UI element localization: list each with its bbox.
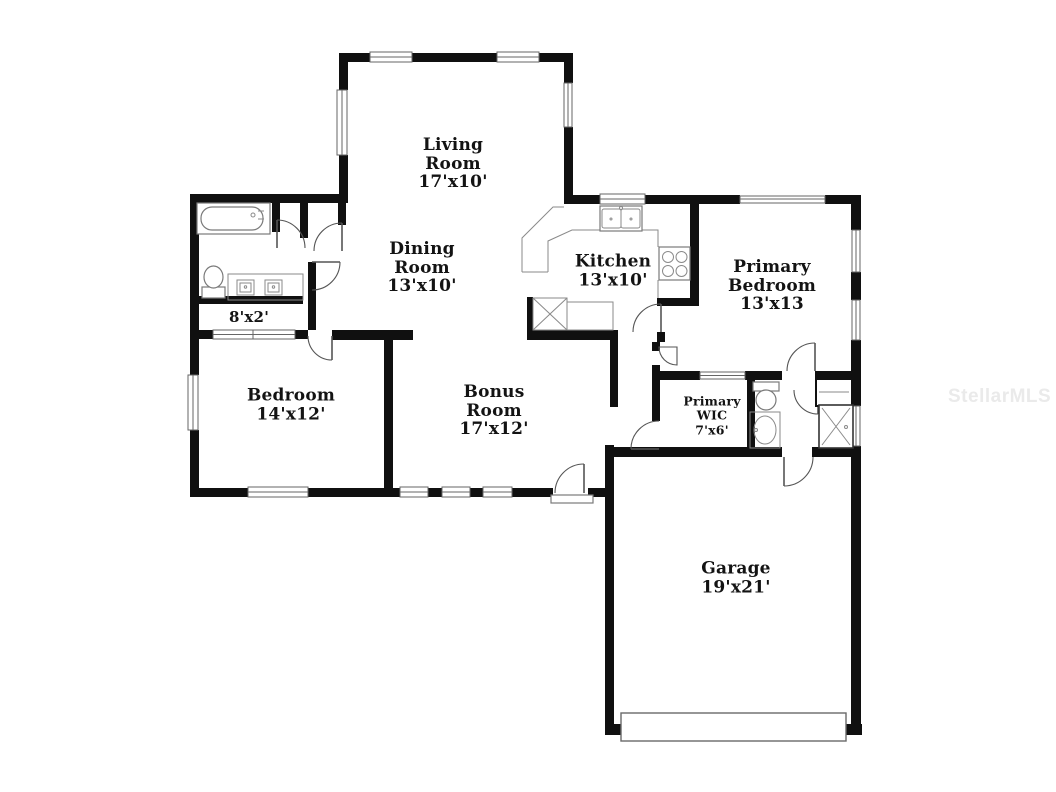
room-dims: 13'x13 <box>722 295 822 314</box>
room-dims: 17'x10' <box>411 173 495 192</box>
bathtub-icon <box>197 203 270 234</box>
room-name: Bedroom <box>236 386 346 405</box>
entry-door-sill <box>551 495 593 503</box>
closet-bifold-icon <box>213 330 295 339</box>
room-dims: 8'x2' <box>214 309 284 326</box>
primary-toilet-icon <box>753 382 779 410</box>
room-label-hall-closet: 8'x2' <box>214 309 284 326</box>
room-name: Kitchen <box>563 252 663 271</box>
room-name: Living Room <box>411 136 495 173</box>
room-dims: 13'x10' <box>563 271 663 290</box>
room-label-bonus-room: Bonus Room 17'x12' <box>459 383 529 439</box>
room-label-dining-room: Dining Room 13'x10' <box>380 240 464 296</box>
room-dims: 17'x12' <box>459 420 529 439</box>
room-dims: 19'x21' <box>686 578 786 597</box>
room-name: Bonus Room <box>459 383 529 420</box>
room-dims: 13'x10' <box>380 277 464 296</box>
room-label-primary-bedroom: Primary Bedroom 13'x13 <box>722 258 822 314</box>
room-dims: 7'x6' <box>681 423 743 437</box>
room-name: Garage <box>686 559 786 578</box>
room-label-primary-wic: Primary WIC 7'x6' <box>681 394 743 437</box>
room-dims: 14'x12' <box>236 405 346 424</box>
room-name: Dining Room <box>380 240 464 277</box>
pantry-closet-icon <box>533 298 613 330</box>
room-name: Primary Bedroom <box>722 258 822 295</box>
shower-icon <box>819 405 853 448</box>
stove-icon <box>659 247 690 280</box>
wic-opening <box>700 372 745 379</box>
room-name: Primary WIC <box>681 394 743 423</box>
room-label-living-room: Living Room 17'x10' <box>411 136 495 192</box>
kitchen-sink-icon <box>600 206 642 231</box>
linen-closet-icon <box>816 379 852 406</box>
toilet-icon <box>202 266 225 298</box>
garage-door-icon <box>621 713 846 741</box>
room-label-kitchen: Kitchen 13'x10' <box>563 252 663 289</box>
room-label-garage: Garage 19'x21' <box>686 559 786 596</box>
room-label-bedroom: Bedroom 14'x12' <box>236 386 346 423</box>
stellar-mls-watermark: StellarMLS <box>948 386 1051 408</box>
floor-plan: Living Room 17'x10' Dining Room 13'x10' … <box>0 0 1056 792</box>
